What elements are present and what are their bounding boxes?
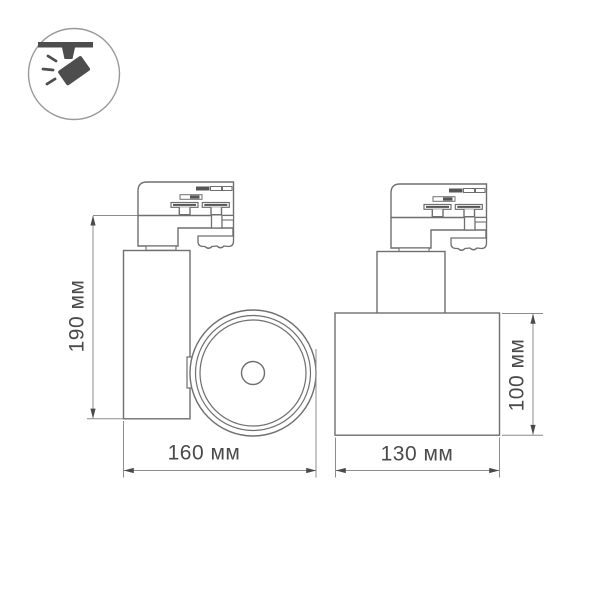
lens-circle xyxy=(190,310,316,436)
front-width-label: 160 мм xyxy=(168,443,241,464)
lamp-body-side xyxy=(335,313,500,435)
side-view-drawing xyxy=(335,184,500,435)
dimension-front-height xyxy=(87,216,123,419)
dimension-drawing xyxy=(0,0,600,600)
gimbal-block-side xyxy=(377,252,445,314)
front-height-label: 190 мм xyxy=(67,280,88,353)
technical-drawing-page: 190 мм 160 мм 100 мм 130 мм xyxy=(0,0,600,600)
front-view-drawing xyxy=(93,182,316,436)
track-adapter-side xyxy=(391,184,487,252)
track-adapter-front xyxy=(138,182,234,250)
side-width-label: 130 мм xyxy=(381,444,454,465)
lamp-body-front xyxy=(124,251,191,419)
side-height-label: 100 мм xyxy=(507,339,528,412)
